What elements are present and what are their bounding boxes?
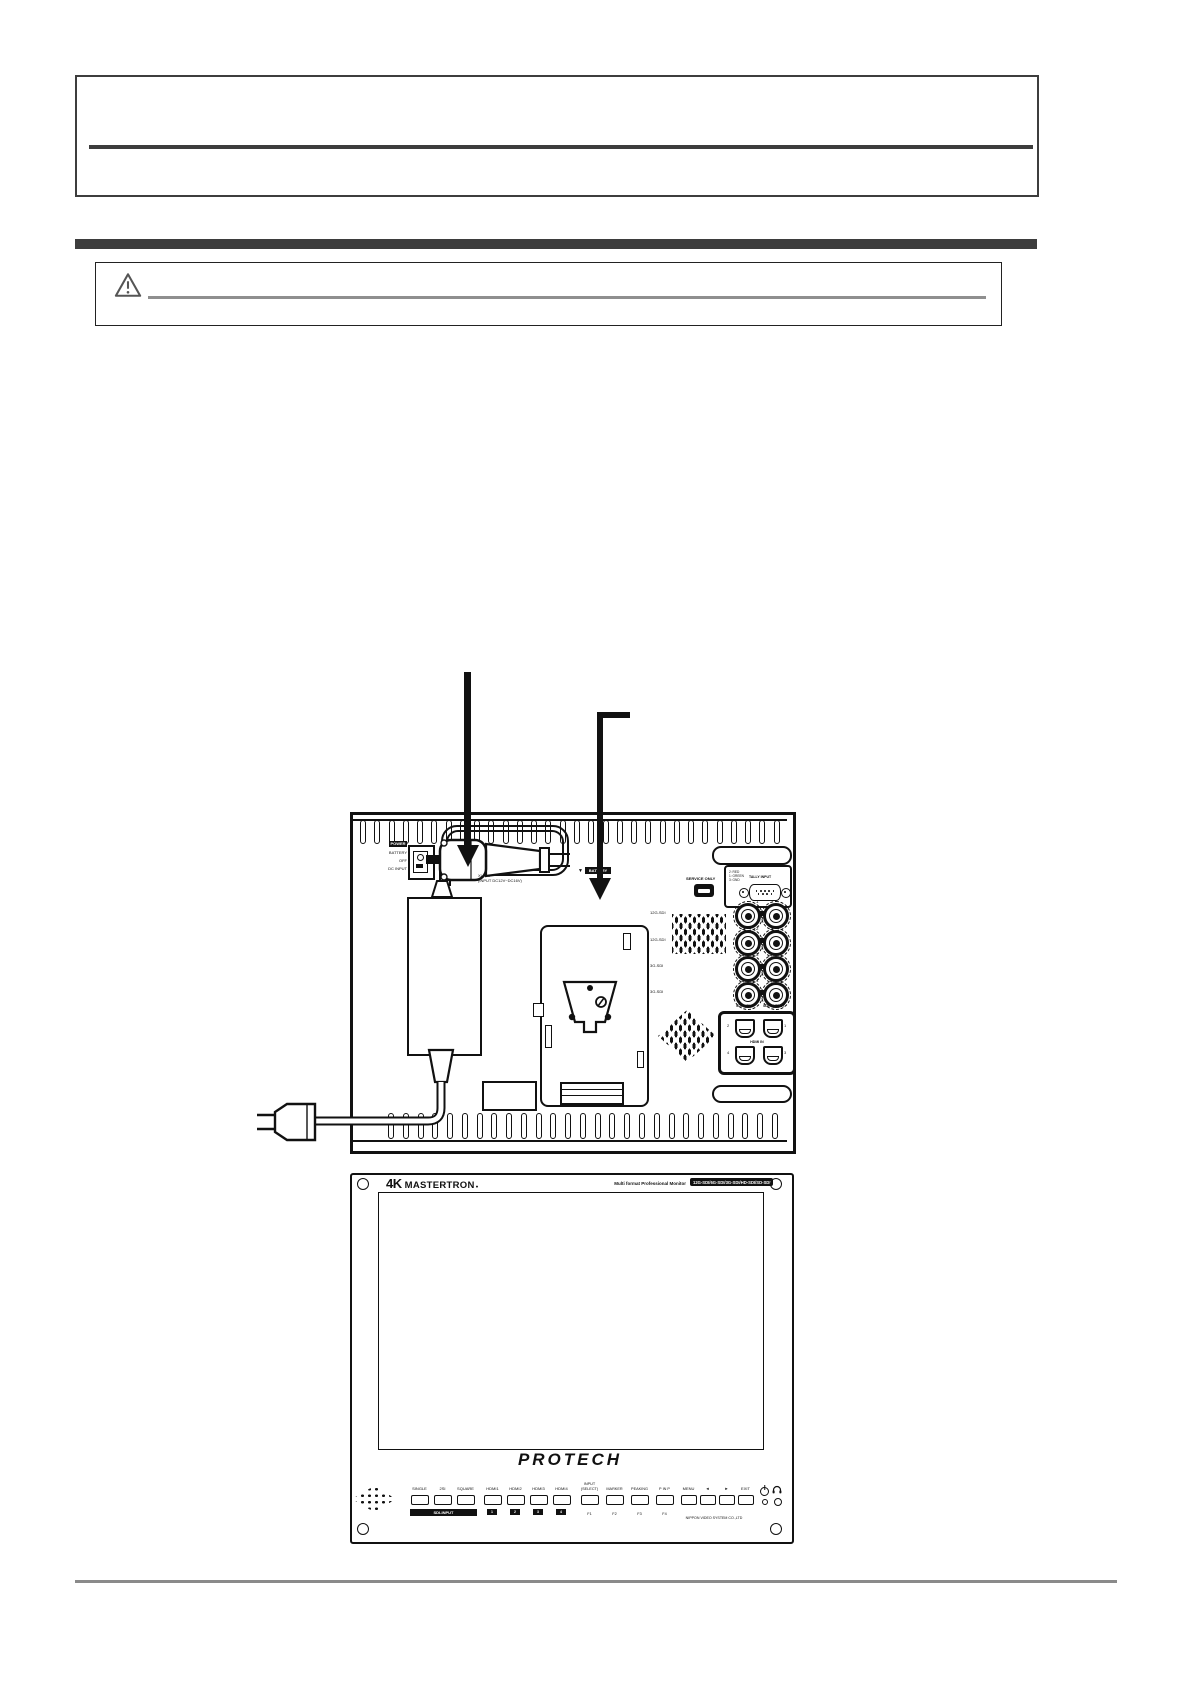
hdmi-port bbox=[763, 1019, 783, 1038]
hdmi-input-block: 2 1 HDMI IN 4 3 bbox=[718, 1011, 796, 1075]
vent-slot bbox=[728, 1113, 734, 1139]
power-icon bbox=[760, 1487, 769, 1496]
corner-screw-hole bbox=[770, 1178, 782, 1190]
function-key-label: F4 bbox=[653, 1512, 676, 1516]
button-label: SINGLE bbox=[409, 1486, 430, 1492]
protech-logo: PROTECH bbox=[350, 1450, 790, 1470]
vent-slot bbox=[491, 1113, 497, 1139]
left-arrow-icon: ◄ bbox=[699, 1486, 716, 1492]
corner-screw-hole bbox=[770, 1523, 782, 1535]
button-menu: MENU bbox=[680, 1486, 697, 1510]
button-square: SQUARE bbox=[455, 1486, 476, 1510]
sdi-row-label: 3G-SDI bbox=[650, 963, 663, 968]
button-left-arrow: ◄ bbox=[699, 1486, 716, 1510]
right-arrow-icon: ► bbox=[718, 1486, 735, 1492]
vent-slot bbox=[731, 820, 737, 844]
corner-screw-hole bbox=[357, 1178, 369, 1190]
caution-box bbox=[95, 262, 1002, 326]
hdmi-port bbox=[763, 1046, 783, 1065]
dsub-screw bbox=[781, 888, 791, 898]
manual-page: POWER BATTERY OFF DC INPUT XLR 4P (INPUT… bbox=[0, 0, 1192, 1685]
button-label: HDMI3 bbox=[528, 1486, 549, 1492]
button-face bbox=[719, 1495, 735, 1505]
header-box bbox=[75, 75, 1039, 197]
vent-slot bbox=[702, 820, 708, 844]
dsub-screw bbox=[739, 888, 749, 898]
usb-slot bbox=[698, 889, 710, 893]
dsub9-connector bbox=[749, 884, 781, 901]
caution-underline bbox=[148, 296, 986, 299]
bnc-output-connector bbox=[763, 930, 789, 956]
vent-slot bbox=[645, 820, 651, 844]
vent-slot bbox=[757, 1113, 763, 1139]
brand-logo: 4K MASTERTRON ● bbox=[386, 1176, 478, 1191]
brand-name: MASTERTRON bbox=[405, 1180, 475, 1191]
button-face bbox=[681, 1495, 697, 1505]
vent-slot bbox=[669, 1113, 675, 1139]
plate-slot bbox=[545, 1025, 552, 1048]
hdmi-port-number: 1 bbox=[784, 1023, 786, 1028]
vent-slot bbox=[639, 1113, 645, 1139]
vent-slot bbox=[550, 1113, 556, 1139]
sdi-input-group-bar: SDI-INPUT bbox=[410, 1509, 477, 1516]
header-rule bbox=[89, 145, 1033, 149]
vent-slot bbox=[654, 1113, 660, 1139]
service-only-label: SERVICE ONLY bbox=[686, 876, 715, 881]
vent-slot bbox=[617, 820, 623, 844]
brand-4k: 4K bbox=[386, 1176, 402, 1191]
vent-slot bbox=[631, 820, 637, 844]
vent-slot bbox=[624, 1113, 630, 1139]
button-label: P IN P bbox=[653, 1482, 676, 1492]
warning-triangle-icon bbox=[114, 272, 142, 298]
plate-side-tab bbox=[533, 1003, 544, 1017]
button-right-arrow: ► bbox=[718, 1486, 735, 1510]
vent-slot bbox=[683, 1113, 689, 1139]
button-face bbox=[411, 1495, 429, 1505]
down-triangle-icon: ▼ bbox=[578, 868, 583, 874]
button-hdmi2: HDMI2 bbox=[505, 1486, 526, 1510]
sdi-row-number: 3 bbox=[756, 952, 759, 957]
maker-text: NIPPON VIDEO SYSTEM CO.,LTD bbox=[668, 1516, 760, 1520]
button-face bbox=[507, 1495, 525, 1505]
vent-slot bbox=[521, 1113, 527, 1139]
power-cord-and-plug bbox=[253, 1048, 488, 1148]
vent-slot bbox=[745, 820, 751, 844]
callout-arrow-2-shaft bbox=[597, 712, 603, 880]
tally-pin-line: 3: GND bbox=[729, 878, 744, 882]
brand-mark-icon: ● bbox=[476, 1184, 479, 1189]
button-pinp: P IN P F4 bbox=[653, 1482, 676, 1516]
sdi-row-label: 12G-SDI bbox=[650, 937, 666, 942]
tally-input-label: TALLY INPUT bbox=[749, 875, 771, 879]
button-exit: EXIT bbox=[737, 1486, 754, 1510]
dc-input-position-label: DC INPUT bbox=[382, 866, 407, 871]
button-face bbox=[700, 1495, 716, 1505]
button-label: 2SI bbox=[432, 1486, 453, 1492]
vent-slot bbox=[774, 820, 780, 844]
vent-slot bbox=[660, 820, 666, 844]
vent-slot bbox=[360, 820, 366, 844]
vent-slot bbox=[417, 820, 423, 844]
v-mount-wedge bbox=[560, 976, 620, 1038]
button-label: HDMI2 bbox=[505, 1486, 526, 1492]
sdi-row-number: 1 bbox=[756, 899, 759, 904]
vent-slot bbox=[536, 1113, 542, 1139]
corner-screw-hole bbox=[357, 1523, 369, 1535]
hdmi-chip: 2 bbox=[510, 1509, 520, 1515]
bnc-output-connector bbox=[763, 956, 789, 982]
hdmi-chip: 4 bbox=[556, 1509, 566, 1515]
vent-slot bbox=[595, 1113, 601, 1139]
vent-slot bbox=[698, 1113, 704, 1139]
rating-label-plate bbox=[482, 1081, 537, 1111]
power-led bbox=[762, 1499, 768, 1505]
button-label: PEAKING bbox=[628, 1482, 651, 1492]
vent-slot bbox=[609, 1113, 615, 1139]
button-hdmi1: HDMI1 bbox=[482, 1486, 503, 1510]
sdi-row-number: 4 bbox=[756, 978, 759, 983]
vent-slot bbox=[688, 820, 694, 844]
sdi-row-number: 2 bbox=[756, 926, 759, 931]
button-peaking: PEAKING F3 bbox=[628, 1482, 651, 1516]
plate-slot bbox=[623, 933, 631, 950]
button-input-select: INPUT(SELECT) F1 bbox=[578, 1482, 601, 1516]
vent-slot bbox=[742, 1113, 748, 1139]
sdi-row-3: 3G-SDI 3 bbox=[650, 954, 790, 980]
service-usb-port bbox=[694, 884, 714, 897]
ac-adapter bbox=[407, 897, 482, 1056]
power-label: POWER bbox=[389, 841, 407, 847]
button-face bbox=[484, 1495, 502, 1505]
vent-slot bbox=[603, 820, 609, 844]
button-face bbox=[530, 1495, 548, 1505]
vent-slot bbox=[506, 1113, 512, 1139]
vent-slot bbox=[588, 820, 594, 844]
vent-slot bbox=[717, 820, 723, 844]
button-label: MENU bbox=[680, 1486, 697, 1492]
sdi-row-label: 3G-SDI bbox=[650, 989, 663, 994]
button-label: SQUARE bbox=[455, 1486, 476, 1492]
vent-slot bbox=[759, 820, 765, 844]
plate-connector-block bbox=[560, 1082, 624, 1105]
button-face bbox=[738, 1495, 754, 1505]
xlr-label-line2: (INPUT DC12V~DC16V) bbox=[478, 878, 522, 883]
bnc-output-connector bbox=[763, 903, 789, 929]
monitor-screen bbox=[378, 1192, 764, 1450]
vent-slot bbox=[565, 1113, 571, 1139]
button-label: EXIT bbox=[737, 1486, 754, 1492]
vent-slot bbox=[574, 820, 580, 844]
sdi-output-label: SDI-OUTPUT bbox=[756, 1004, 792, 1008]
sdi-row-4: 3G-SDI 4 bbox=[650, 980, 790, 1006]
monitor-subtitle: Multi format Professional Monitor bbox=[556, 1181, 686, 1186]
button-hdmi3: HDMI3 bbox=[528, 1486, 549, 1510]
hdmi-port-number: 4 bbox=[727, 1050, 729, 1055]
hdmi-port-number: 2 bbox=[727, 1023, 729, 1028]
headphone-icon bbox=[772, 1485, 782, 1494]
tally-pin-legend: 2: RED 1: GREEN 3: GND bbox=[729, 870, 744, 882]
button-face bbox=[656, 1495, 674, 1505]
button-face bbox=[434, 1495, 452, 1505]
sdi-row-2: 12G-SDI 2 bbox=[650, 928, 790, 954]
headphone-jack bbox=[774, 1498, 782, 1506]
callout-arrow-2-head bbox=[589, 878, 611, 900]
battery-position-label: BATTERY bbox=[382, 850, 407, 855]
hdmi-port bbox=[735, 1019, 755, 1038]
button-face bbox=[457, 1495, 475, 1505]
button-face bbox=[606, 1495, 624, 1505]
handle-slot-bottom bbox=[712, 1085, 792, 1103]
vent-slot bbox=[374, 820, 380, 844]
switch-bar bbox=[416, 864, 423, 868]
hdmi-port bbox=[735, 1046, 755, 1065]
function-key-label: F2 bbox=[603, 1512, 626, 1516]
footer-rule bbox=[75, 1580, 1117, 1583]
hdmi-in-label: HDMI IN bbox=[721, 1040, 793, 1044]
vent-slot bbox=[772, 1113, 778, 1139]
button-single: SINGLE bbox=[409, 1486, 430, 1510]
off-position-label: OFF bbox=[382, 858, 407, 863]
callout-arrow-1-shaft bbox=[464, 672, 471, 846]
button-face bbox=[553, 1495, 571, 1505]
battery-pointer: ▼ BATTERY bbox=[578, 867, 611, 874]
sdi-row-1: 12G-SDI 1 bbox=[650, 901, 790, 927]
button-2si: 2SI bbox=[432, 1486, 453, 1510]
button-marker: MARKER F2 bbox=[603, 1482, 626, 1516]
button-label: HDMI1 bbox=[482, 1486, 503, 1492]
hdmi-chip: 3 bbox=[533, 1509, 543, 1515]
callout-arrow-1-head bbox=[457, 845, 479, 867]
section-title-bar bbox=[75, 239, 1037, 249]
button-face bbox=[581, 1495, 599, 1505]
plate-slot bbox=[637, 1051, 644, 1068]
vent-slot bbox=[713, 1113, 719, 1139]
function-key-label: F3 bbox=[628, 1512, 651, 1516]
hdmi-port-number: 3 bbox=[784, 1050, 786, 1055]
button-label: HDMI4 bbox=[551, 1486, 572, 1492]
vent-slot bbox=[580, 1113, 586, 1139]
function-key-label: F1 bbox=[578, 1512, 601, 1516]
vent-slot bbox=[674, 820, 680, 844]
handle-slot-top bbox=[712, 846, 792, 865]
switch-dot bbox=[417, 854, 424, 861]
hdmi-chip: 1 bbox=[487, 1509, 497, 1515]
button-face bbox=[631, 1495, 649, 1505]
sdi-format-badge: 12G-SDI/6G-SDI/3G-SDI/HD-SDI/SD-SDI bbox=[690, 1178, 773, 1186]
button-label: MARKER bbox=[603, 1482, 626, 1492]
sdi-row-label: 12G-SDI bbox=[650, 910, 666, 915]
xlr-input-label: XLR 4P (INPUT DC12V~DC16V) bbox=[478, 873, 522, 883]
button-hdmi4: HDMI4 bbox=[551, 1486, 572, 1510]
button-label: INPUT(SELECT) bbox=[578, 1482, 601, 1492]
